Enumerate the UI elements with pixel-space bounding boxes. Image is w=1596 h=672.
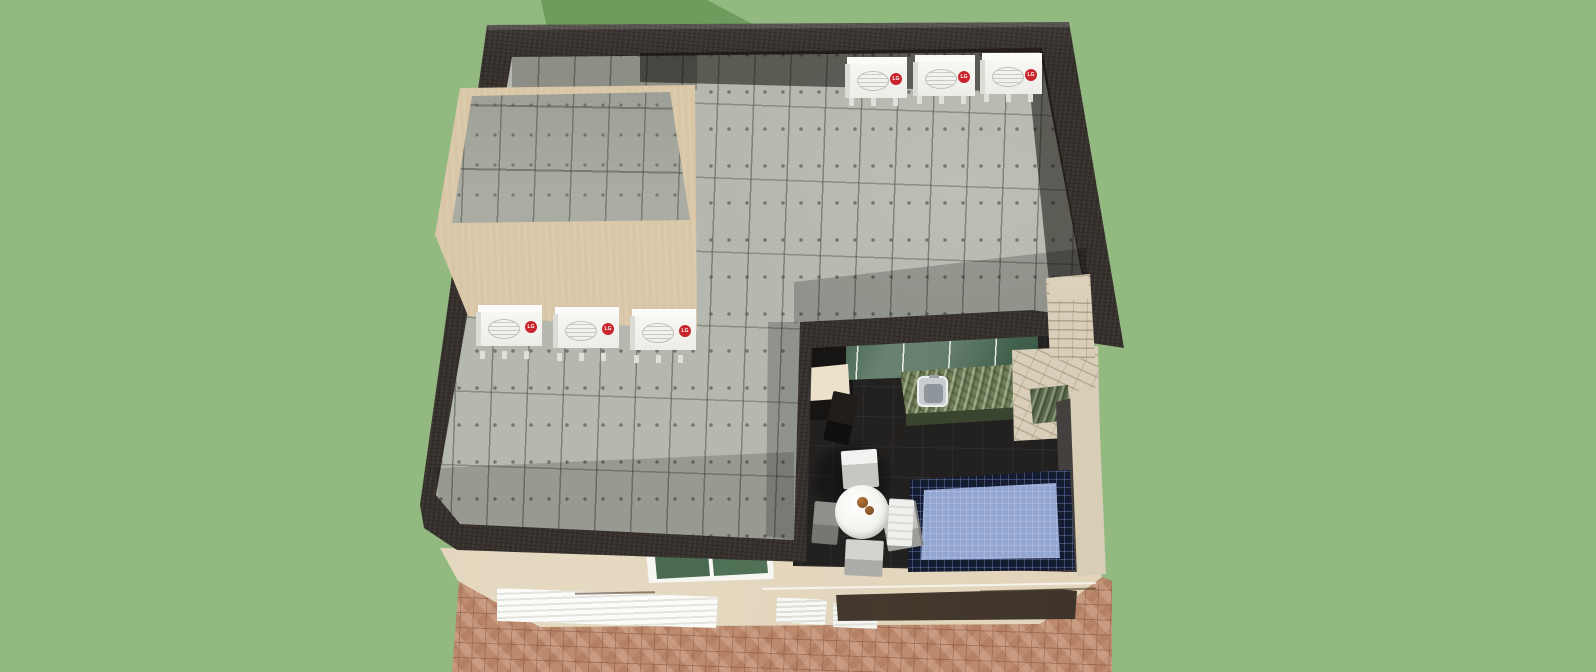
ac-condenser-unit: LG <box>845 57 907 106</box>
fan-grille-icon <box>992 67 1024 87</box>
fan-grille-icon <box>642 323 674 343</box>
chair <box>841 449 880 489</box>
fruit <box>865 506 874 515</box>
sink-faucet <box>929 375 939 378</box>
ac-body: LG <box>913 62 975 96</box>
lg-logo-badge: LG <box>679 325 691 337</box>
ac-body: LG <box>553 314 619 348</box>
fan-grille-icon <box>857 71 889 91</box>
ac-body: LG <box>980 60 1042 94</box>
lg-logo-badge: LG <box>525 321 537 333</box>
lg-logo-badge: LG <box>890 73 902 85</box>
ac-legs <box>634 355 692 363</box>
lg-logo-badge: LG <box>602 323 614 335</box>
sink-basin <box>924 384 943 403</box>
lg-logo-badge: LG <box>1025 69 1037 81</box>
ac-body: LG <box>476 312 542 346</box>
ac-legs <box>557 353 615 361</box>
fan-grille-icon <box>488 319 520 339</box>
sun-lounger <box>887 498 914 546</box>
model-viewport[interactable]: LG LG LG LG LG <box>0 0 1596 672</box>
ac-condenser-unit: LG <box>553 307 619 361</box>
kitchen-sink <box>917 376 948 407</box>
ac-body: LG <box>845 64 907 98</box>
ac-condenser-unit: LG <box>630 309 696 363</box>
ac-condenser-unit: LG <box>980 53 1042 102</box>
fan-grille-icon <box>565 321 597 341</box>
fan-grille-icon <box>925 69 957 89</box>
dining-table <box>835 485 889 539</box>
ac-condenser-unit: LG <box>476 305 542 359</box>
ac-legs <box>480 351 538 359</box>
ac-legs <box>984 94 1038 102</box>
lg-logo-badge: LG <box>958 71 970 83</box>
ac-condenser-unit: LG <box>913 55 975 104</box>
ac-legs <box>849 98 903 106</box>
chair <box>844 539 884 577</box>
ac-legs <box>917 96 971 104</box>
ac-body: LG <box>630 316 696 350</box>
